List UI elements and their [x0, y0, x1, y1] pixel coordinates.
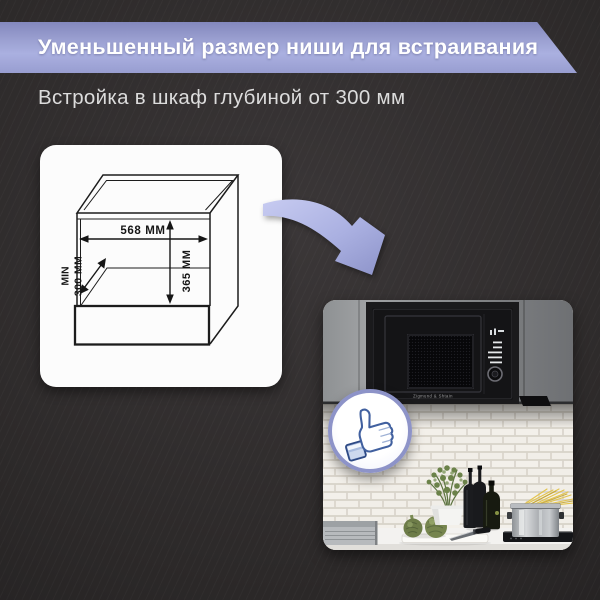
curved-arrow-icon [255, 185, 395, 295]
depth-min-label: MIN [60, 266, 72, 285]
header-banner: Уменьшенный размер ниши для встраивания [0, 22, 577, 73]
height-dimension: 365 ММ [166, 220, 193, 304]
thumbs-up-badge [328, 389, 412, 473]
height-label: 365 ММ [181, 250, 193, 293]
page-title: Уменьшенный размер ниши для встраивания [0, 35, 538, 60]
cabinet-diagram: 568 ММ 365 ММ MIN 300 ММ [40, 145, 282, 387]
subtitle-text: Встройка в шкаф глубиной от 300 мм [38, 86, 405, 110]
thumbs-up-icon [332, 393, 408, 469]
sink [323, 521, 378, 545]
diagram-card: 568 ММ 365 ММ MIN 300 ММ [40, 145, 282, 387]
cabinet-drawing [75, 175, 238, 345]
depth-dimension: MIN 300 ММ [60, 256, 106, 296]
promo-slide: { "banner": { "title": "Уменьшенный разм… [0, 0, 600, 600]
microwave-window [408, 335, 473, 388]
width-label: 568 ММ [120, 225, 165, 237]
microwave: Zigmund & Shtain [372, 308, 513, 400]
microwave-brand: Zigmund & Shtain [413, 394, 453, 399]
width-dimension: 568 ММ [79, 225, 208, 243]
cabinet-handle [519, 396, 551, 406]
depth-value-label: 300 ММ [73, 256, 85, 296]
